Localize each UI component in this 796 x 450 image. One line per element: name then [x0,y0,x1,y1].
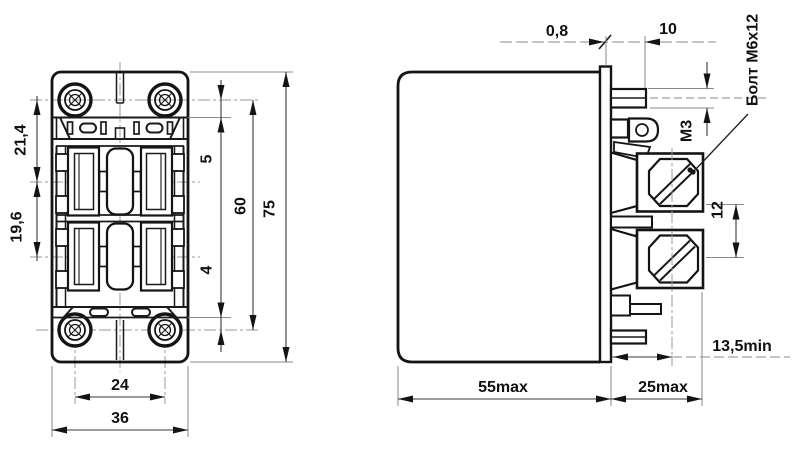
dim-5: 5 [199,154,216,163]
blade-terminal-lower [611,296,661,316]
dim-60: 60 [233,197,250,215]
rear-flange [600,67,611,363]
contact-row-1 [68,148,172,216]
side-body [398,67,611,363]
dim-10: 10 [659,21,677,38]
bolt-callout: Болт М6х12 [690,14,761,175]
screw-top-right [149,84,181,116]
screw-top-left [59,84,91,116]
dim-12: 12 [710,201,727,219]
dim-4: 4 [199,265,216,274]
dim-0-8: 0,8 [546,23,568,40]
blade-terminal-top [611,89,646,108]
contact-row-2 [68,223,172,291]
bolt-callout-label: Болт М6х12 [745,14,762,106]
dim-25max: 25max [638,379,688,396]
side-view: 0,8 10 М3 Болт М6х12 12 [398,14,790,406]
dim-m3: М3 [679,120,696,142]
screw-terminal-1 [611,153,703,214]
screw-terminal-2 [611,229,703,290]
dim-19-6: 19,6 [9,211,26,242]
screw-bottom-left [59,314,91,346]
dim-21-4: 21,4 [13,124,30,155]
dim-24: 24 [111,377,129,394]
dim-13-5min: 13,5min [712,338,772,355]
technical-drawing-relay: 21,4 19,6 5 4 60 75 [0,0,796,450]
dim-36: 36 [111,410,129,427]
bolt-head-2 [649,236,698,283]
dim-75: 75 [262,200,279,218]
screw-bottom-right [149,314,181,346]
bolt-head-1 [649,159,698,206]
drawing-svg: 21,4 19,6 5 4 60 75 [0,0,796,450]
coil-terminal-m3 [611,119,658,159]
front-view: 21,4 19,6 5 4 60 75 [9,62,293,437]
dim-55max: 55max [478,379,528,396]
contact-block [56,146,184,307]
blade-terminal-bottom [611,331,646,344]
